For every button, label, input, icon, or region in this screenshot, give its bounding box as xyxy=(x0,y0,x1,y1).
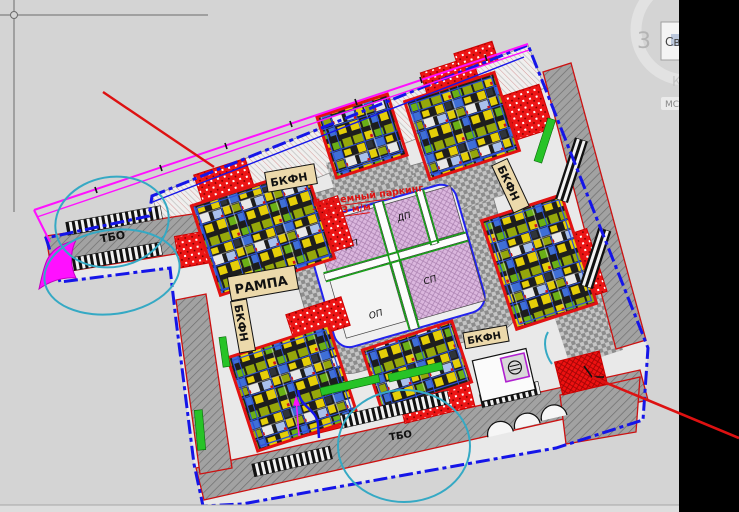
leader-line-1[interactable] xyxy=(103,92,214,167)
crosshair-cursor xyxy=(0,0,208,212)
drawing-canvas[interactable]: ДП ДП СП ОП xyxy=(0,0,739,512)
site-plan[interactable]: ДП ДП СП ОП xyxy=(34,41,648,506)
overlay-badge: МС xyxy=(665,100,679,110)
cad-viewport[interactable]: ДП ДП СП ОП xyxy=(0,0,739,512)
bottom-strip xyxy=(0,505,679,512)
transformer-station[interactable] xyxy=(501,353,530,382)
overlay-digit: 3 xyxy=(637,29,651,54)
